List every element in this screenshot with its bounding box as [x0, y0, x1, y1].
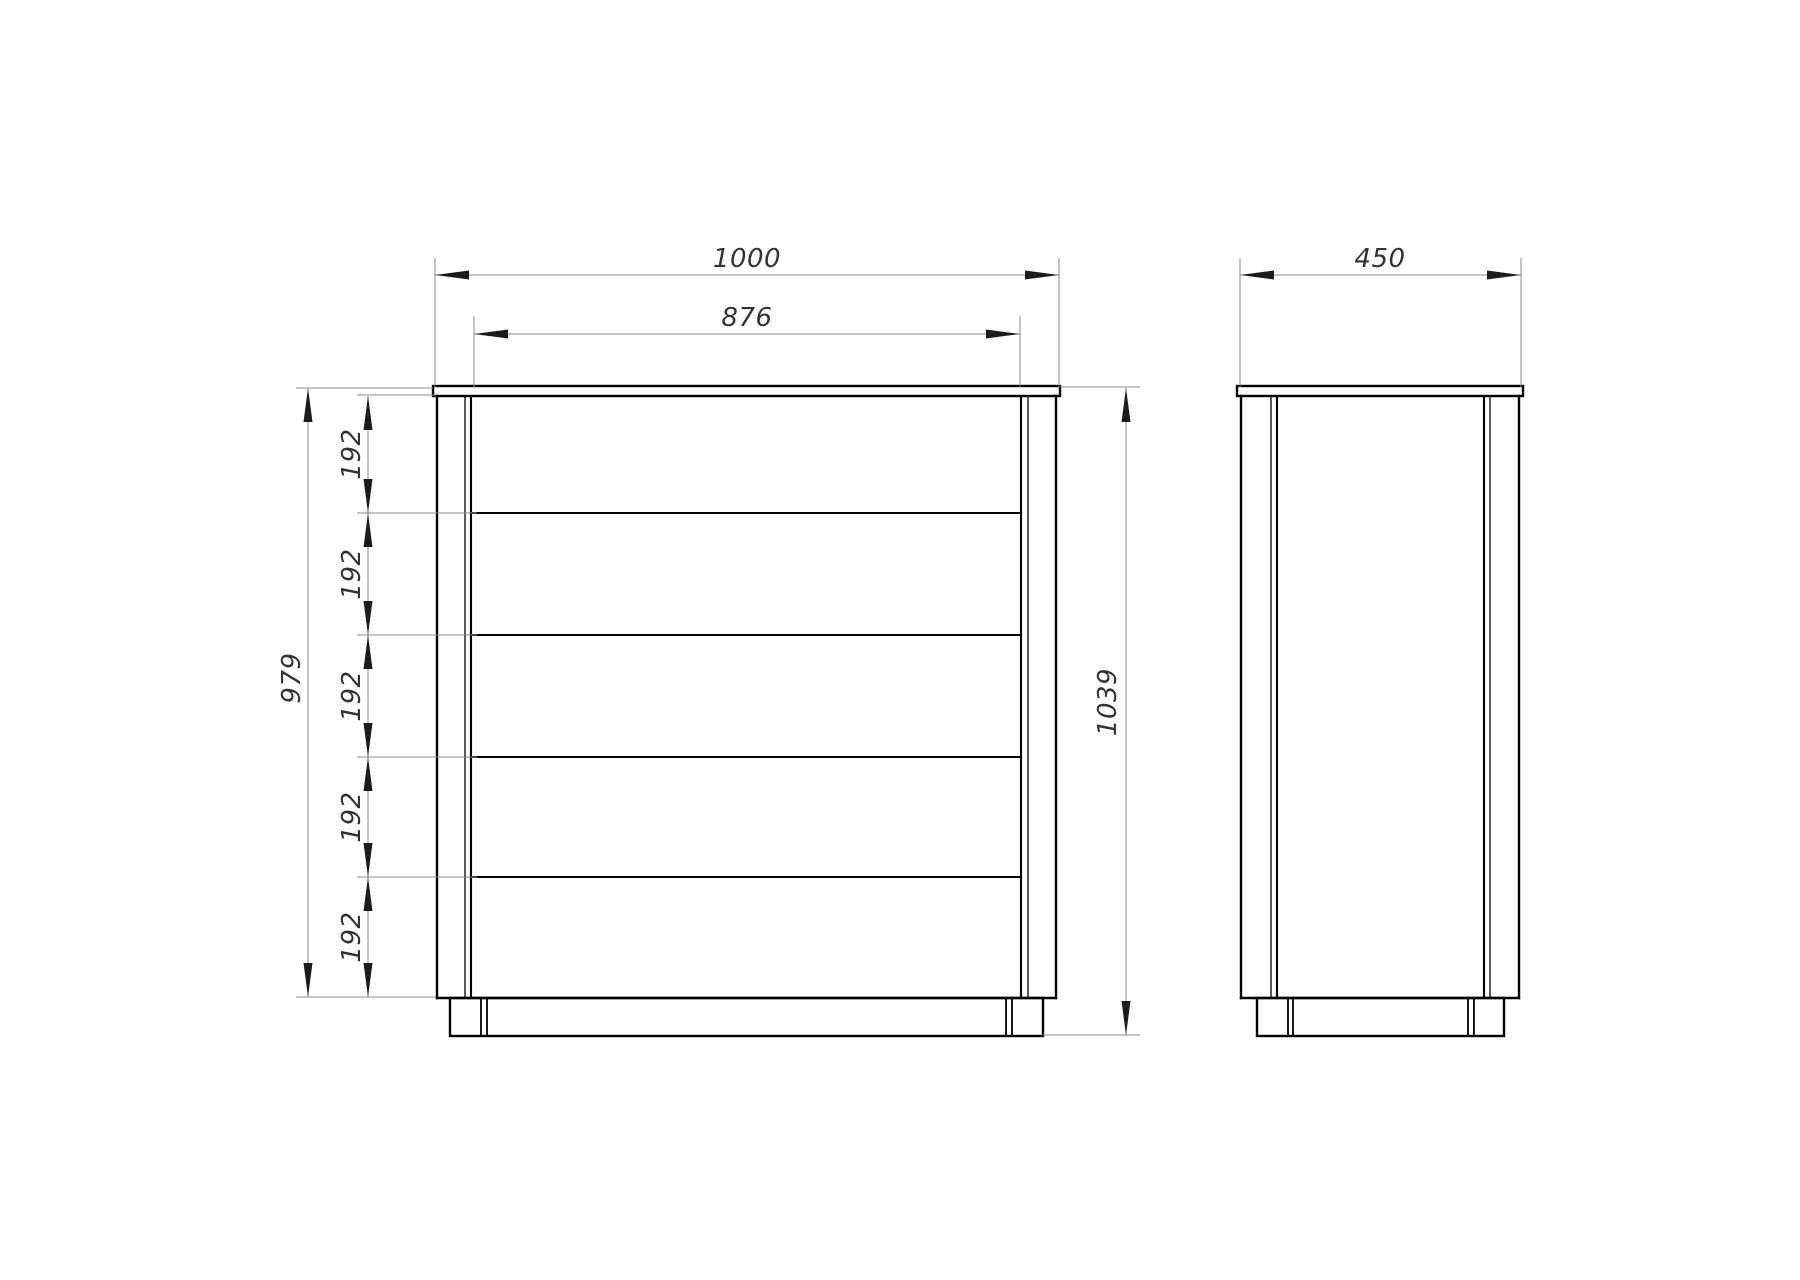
dim-label-drawer-pitch-2: 192	[337, 548, 367, 599]
dim-arrow-down	[364, 843, 373, 877]
dim-label-drawer-pitch-3: 192	[337, 670, 367, 721]
front-top-panel	[433, 386, 1060, 396]
dim-label-depth: 450	[1354, 244, 1405, 274]
technical-drawing-canvas: 1000 876 450 979	[0, 0, 1800, 1280]
dim-arrow-up	[364, 757, 373, 791]
dim-arrow-down	[304, 963, 313, 997]
dresser-dimension-drawing: 1000 876 450 979	[0, 0, 1800, 1280]
dim-label-carcass-height: 979	[277, 652, 307, 703]
dim-arrow-right	[1025, 271, 1059, 280]
dim-drawer-pitch-chain: 192 192 192 192 192	[337, 395, 477, 997]
dim-arrow-left	[435, 271, 469, 280]
dim-arrow-right	[986, 330, 1020, 339]
dim-arrow-up	[364, 513, 373, 547]
dim-arrow-up	[1122, 388, 1131, 422]
front-plinth	[450, 998, 1043, 1036]
dim-arrow-up	[364, 877, 373, 911]
dim-arrow-right	[1487, 271, 1521, 280]
dim-arrow-left	[474, 330, 508, 339]
dim-arrow-down	[1122, 1001, 1131, 1035]
dim-label-drawer-pitch-1: 192	[337, 428, 367, 479]
dim-depth: 450	[1240, 244, 1521, 387]
dim-overall-height: 1039	[1043, 387, 1140, 1035]
dim-label-drawer-front-width: 876	[721, 303, 772, 333]
dim-label-overall-width: 1000	[713, 244, 781, 274]
dim-arrow-down	[364, 963, 373, 997]
dim-arrow-up	[364, 396, 373, 430]
dim-label-overall-height: 1039	[1093, 668, 1123, 736]
dim-label-drawer-pitch-4: 192	[337, 791, 367, 842]
dim-arrow-up	[304, 388, 313, 422]
dim-arrow-down	[364, 601, 373, 635]
side-view	[1237, 386, 1523, 1036]
dim-arrow-down	[364, 479, 373, 513]
front-view	[433, 386, 1060, 1036]
dim-drawer-front-width: 876	[474, 303, 1020, 387]
dim-arrow-down	[364, 723, 373, 757]
side-plinth	[1257, 998, 1504, 1036]
dim-arrow-left	[1240, 271, 1274, 280]
dim-arrow-up	[364, 635, 373, 669]
dim-label-drawer-pitch-5: 192	[337, 911, 367, 962]
side-top-panel	[1237, 386, 1523, 396]
